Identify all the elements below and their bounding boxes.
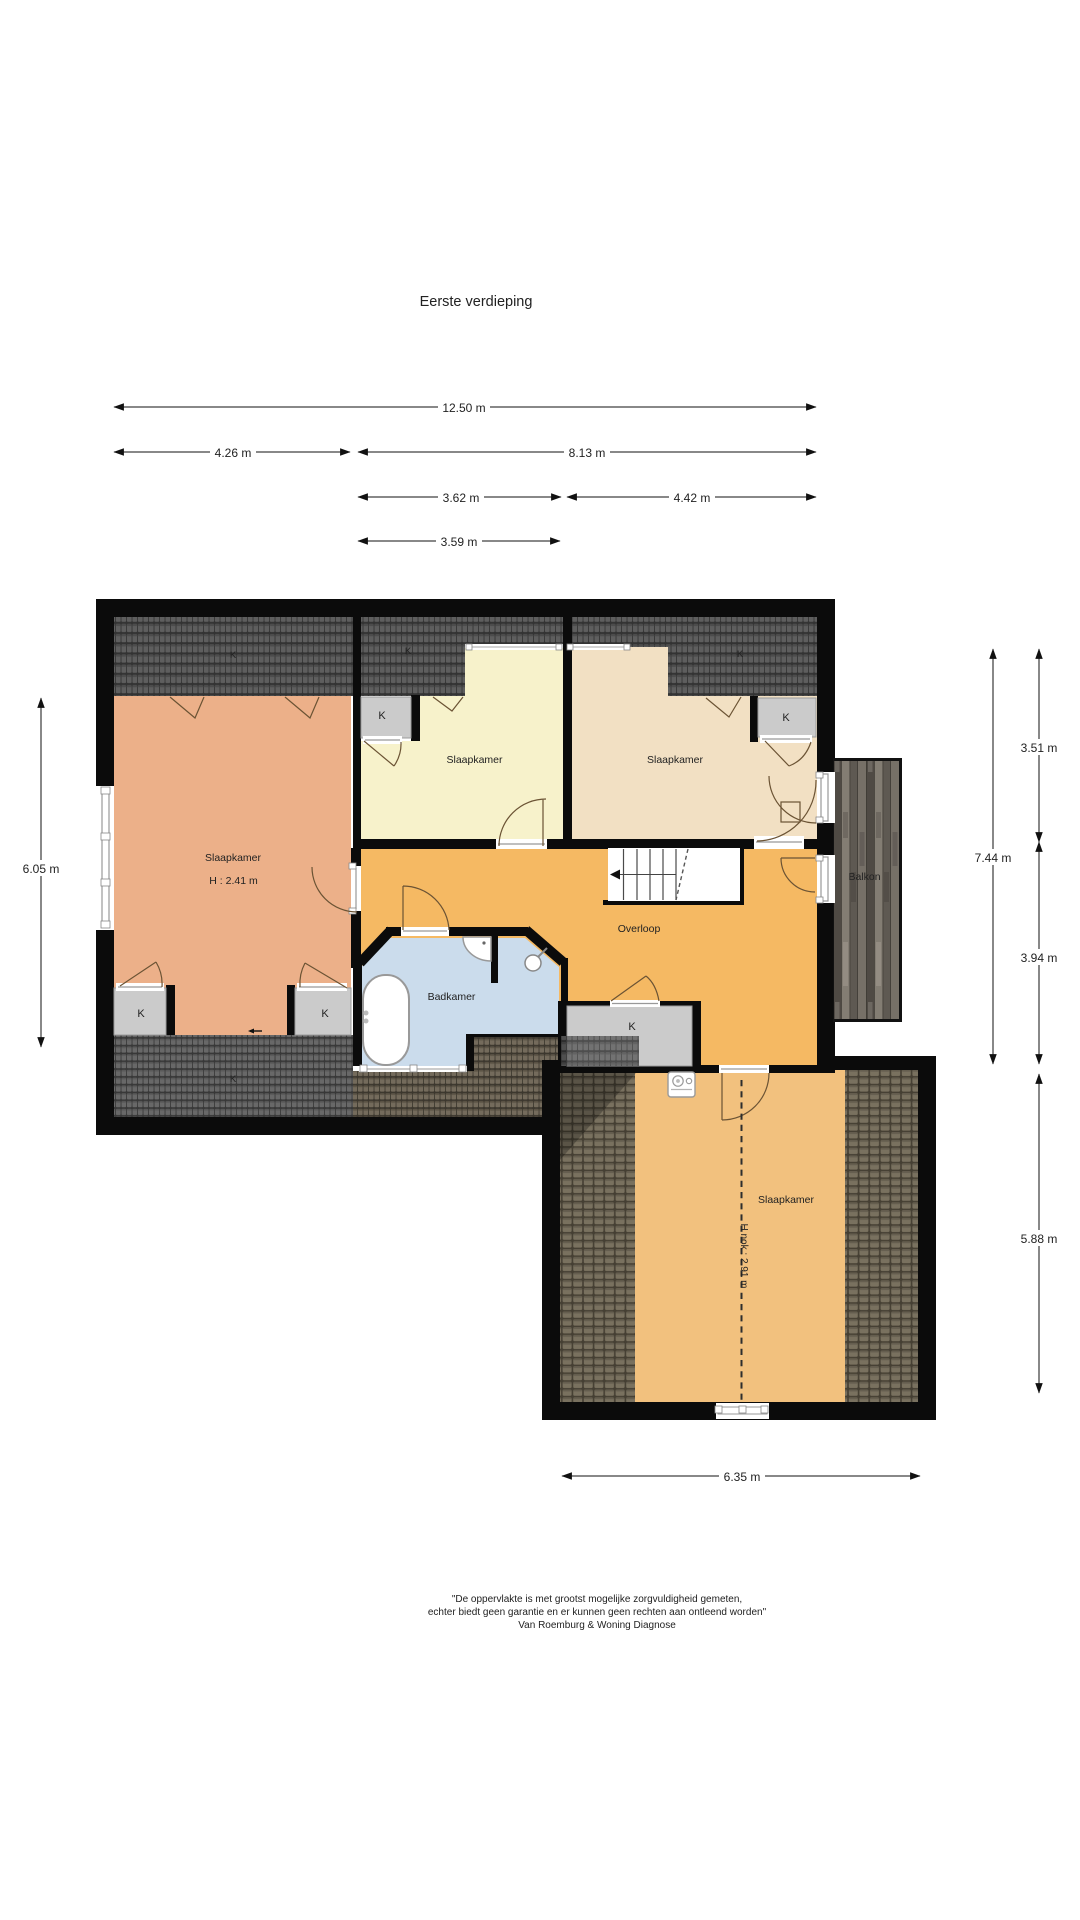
- svg-text:5.88 m: 5.88 m: [1021, 1232, 1058, 1246]
- svg-text:K: K: [230, 1074, 237, 1085]
- svg-text:K: K: [378, 710, 386, 722]
- svg-text:K: K: [782, 712, 790, 724]
- svg-text:3.51 m: 3.51 m: [1021, 741, 1058, 755]
- svg-text:3.94 m: 3.94 m: [1021, 951, 1058, 965]
- svg-text:8.13 m: 8.13 m: [569, 446, 606, 460]
- svg-text:echter biedt geen garantie en: echter biedt geen garantie en er kunnen …: [428, 1607, 767, 1618]
- svg-text:K: K: [628, 1021, 636, 1033]
- svg-text:K: K: [321, 1008, 329, 1020]
- svg-text:Slaapkamer: Slaapkamer: [758, 1194, 815, 1206]
- svg-text:K: K: [137, 1008, 145, 1020]
- svg-text:7.44 m: 7.44 m: [975, 851, 1012, 865]
- svg-text:Slaapkamer: Slaapkamer: [647, 754, 704, 766]
- svg-text:K: K: [230, 650, 237, 661]
- svg-text:Badkamer: Badkamer: [428, 991, 476, 1003]
- svg-text:K: K: [405, 646, 412, 657]
- svg-text:12.50 m: 12.50 m: [442, 401, 485, 415]
- svg-text:Balkon: Balkon: [848, 871, 880, 883]
- svg-text:6.05 m: 6.05 m: [23, 862, 60, 876]
- svg-text:K: K: [737, 649, 744, 660]
- svg-text:Van Roemburg & Woning Diagnose: Van Roemburg & Woning Diagnose: [518, 1620, 676, 1631]
- svg-text:6.35 m: 6.35 m: [724, 1470, 761, 1484]
- svg-text:Overloop: Overloop: [618, 923, 661, 935]
- svg-text:Eerste verdieping: Eerste verdieping: [420, 294, 533, 310]
- svg-text:"De oppervlakte is met grootst: "De oppervlakte is met grootst mogelijke…: [452, 1594, 742, 1605]
- svg-text:H : 2.41 m: H : 2.41 m: [209, 875, 258, 887]
- svg-text:Slaapkamer: Slaapkamer: [205, 852, 262, 864]
- svg-text:3.59 m: 3.59 m: [441, 535, 478, 549]
- svg-text:Slaapkamer: Slaapkamer: [446, 754, 503, 766]
- svg-text:H nok : 2.91 m: H nok : 2.91 m: [738, 1223, 749, 1288]
- svg-text:3.62 m: 3.62 m: [443, 491, 480, 505]
- svg-text:4.26 m: 4.26 m: [215, 446, 252, 460]
- svg-text:4.42 m: 4.42 m: [674, 491, 711, 505]
